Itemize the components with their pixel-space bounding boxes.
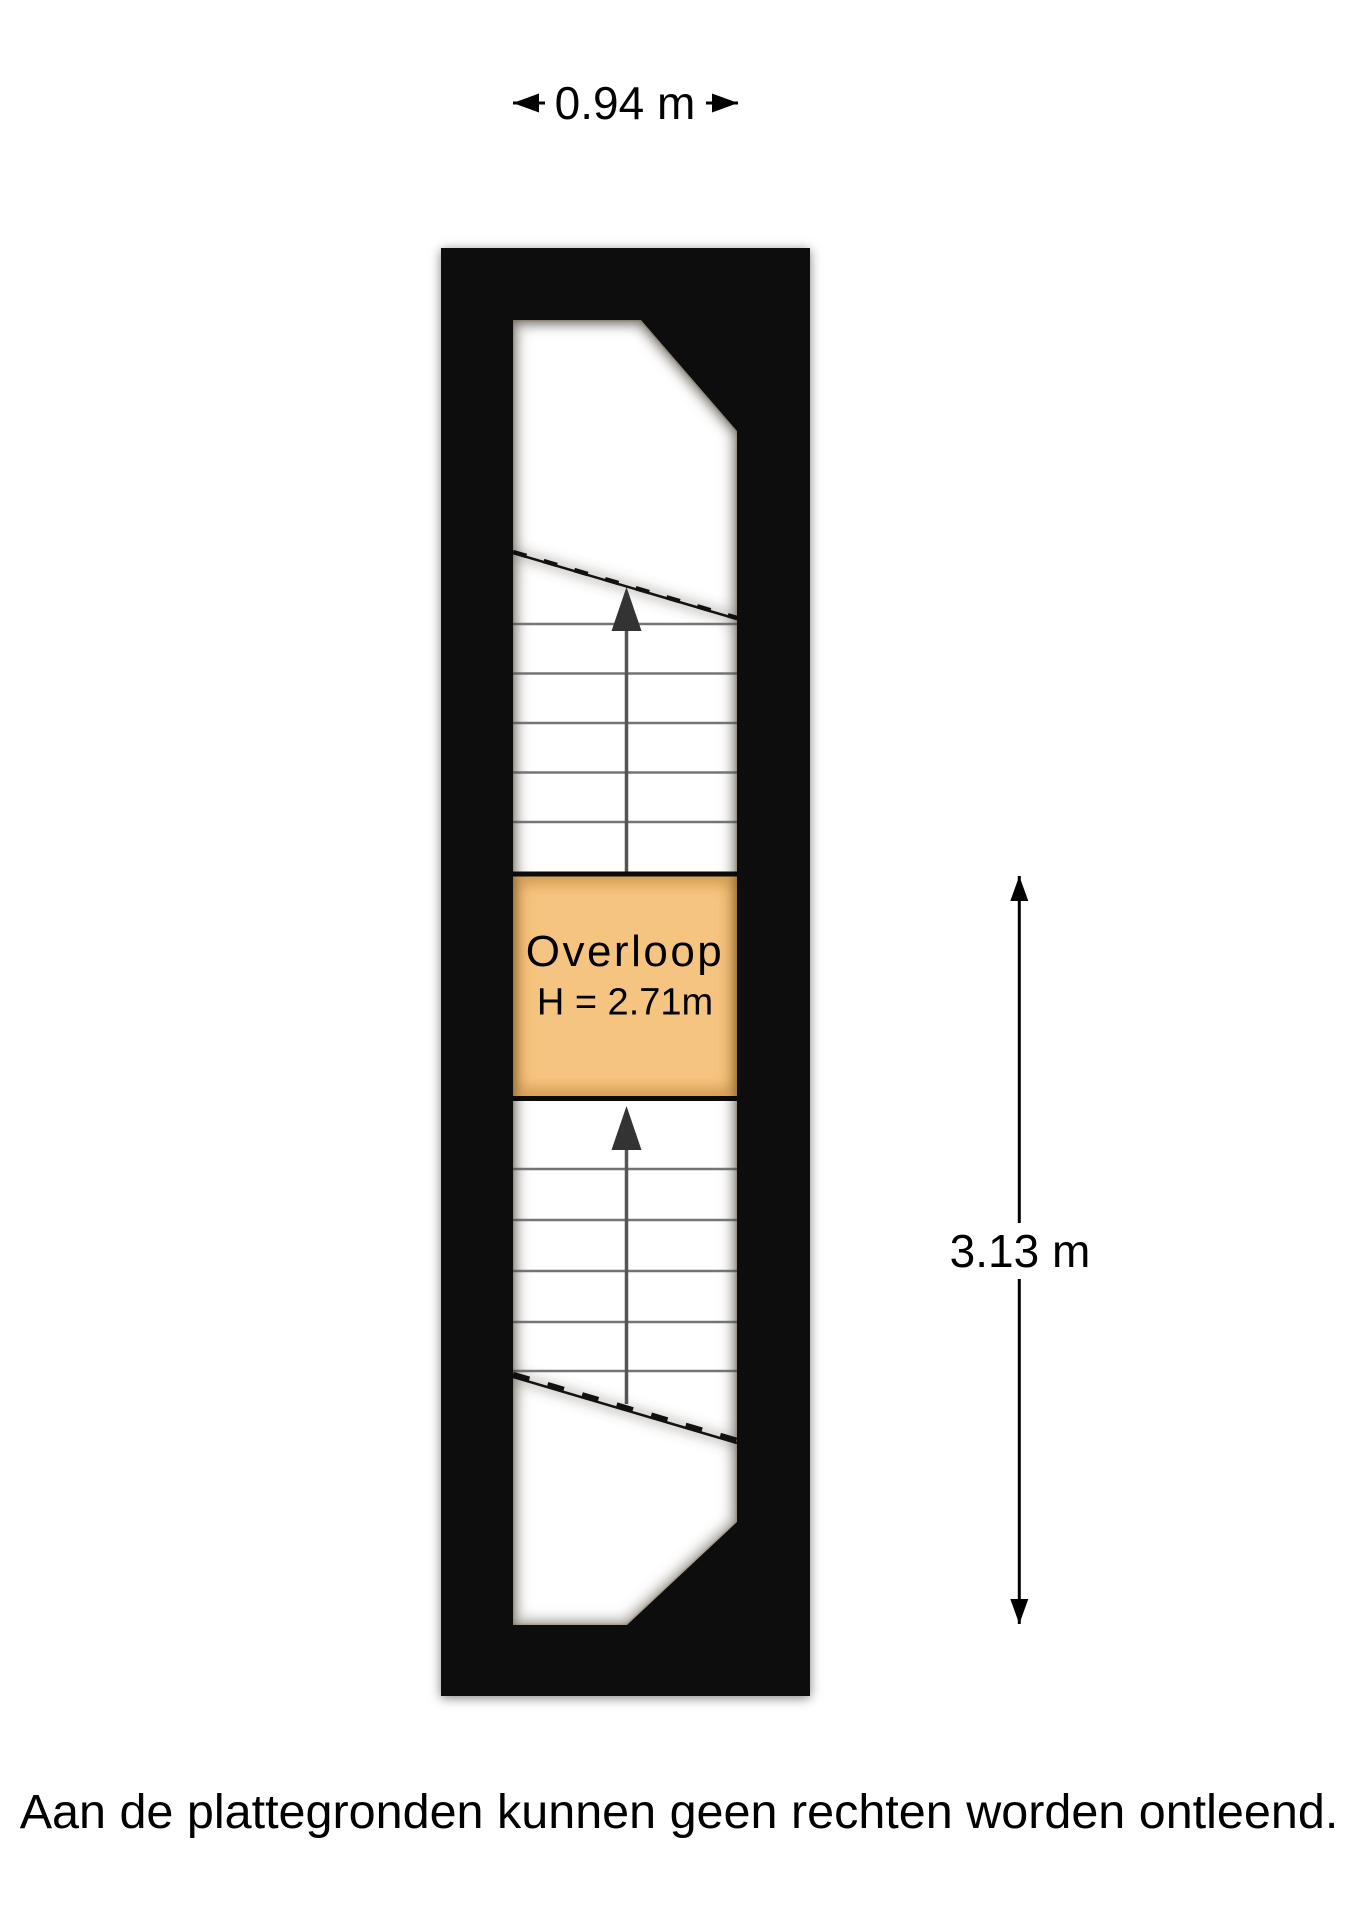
svg-text:H = 2.71m: H = 2.71m	[537, 982, 713, 1024]
svg-text:Aan de plattegronden kunnen ge: Aan de plattegronden kunnen geen rechten…	[20, 1785, 1339, 1839]
svg-text:3.13 m: 3.13 m	[950, 1225, 1091, 1277]
svg-text:Overloop: Overloop	[526, 927, 725, 976]
svg-text:0.94 m: 0.94 m	[555, 77, 696, 129]
